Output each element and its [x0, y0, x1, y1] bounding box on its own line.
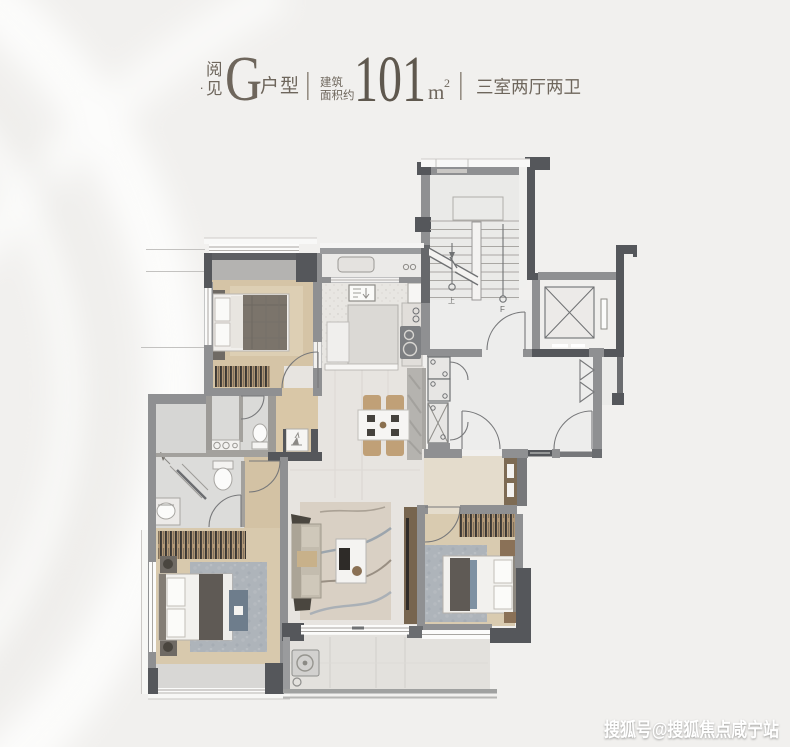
- svg-text:见: 见: [206, 80, 223, 98]
- svg-text:户型: 户型: [260, 75, 300, 97]
- svg-text:三室两厅两卫: 三室两厅两卫: [476, 77, 581, 97]
- svg-text:面积约: 面积约: [320, 88, 355, 102]
- svg-text:101: 101: [354, 43, 426, 116]
- svg-text:m: m: [428, 80, 444, 104]
- svg-text:建筑: 建筑: [320, 75, 343, 89]
- svg-text:·: ·: [200, 80, 204, 95]
- svg-text:上: 上: [448, 296, 455, 305]
- svg-text:F: F: [500, 305, 505, 314]
- svg-text:2: 2: [444, 76, 450, 90]
- svg-text:G: G: [225, 43, 262, 114]
- svg-text:搜狐号@搜狐焦点咸宁站: 搜狐号@搜狐焦点咸宁站: [604, 718, 779, 741]
- svg-text:阅: 阅: [206, 60, 223, 79]
